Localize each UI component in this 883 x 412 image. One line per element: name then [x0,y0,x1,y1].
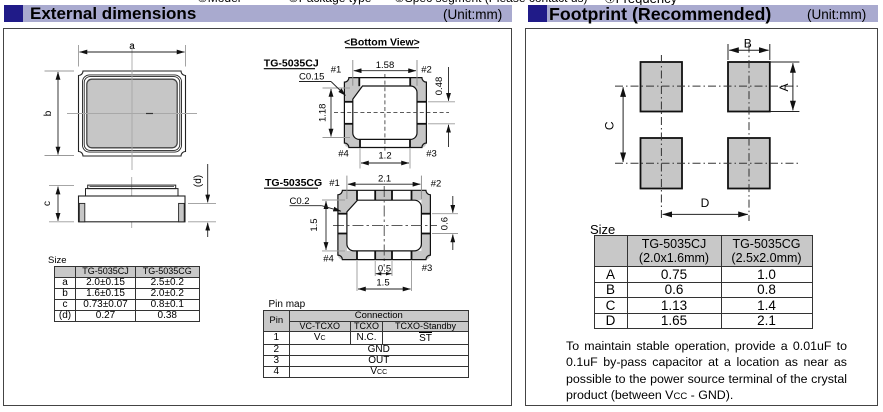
svg-text:#3: #3 [422,263,433,274]
svg-text:C: C [602,121,616,130]
svg-text:D: D [701,196,710,210]
svg-text:#4: #4 [338,149,349,160]
svg-text:0.48: 0.48 [434,77,445,96]
svg-text:0.5: 0.5 [378,263,391,274]
svg-text:TG-5035CG: TG-5035CG [265,177,322,189]
svg-text:#2: #2 [421,65,432,76]
svg-text:#1: #1 [331,65,342,76]
svg-text:a: a [129,41,135,52]
svg-text:(d): (d) [193,175,204,187]
svg-text:1.5: 1.5 [309,218,320,231]
svg-text:A: A [777,83,791,91]
svg-text:#4: #4 [323,254,334,265]
svg-text:1.58: 1.58 [376,60,395,71]
svg-text:#2: #2 [431,178,442,189]
svg-text:b: b [43,110,54,116]
svg-text:#1: #1 [329,178,340,189]
svg-text:c: c [42,201,53,206]
svg-text:<Bottom View>: <Bottom View> [344,36,420,48]
svg-text:1.18: 1.18 [318,104,329,123]
svg-text:TG-5035CJ: TG-5035CJ [264,57,319,69]
svg-text:2.1: 2.1 [378,173,391,184]
svg-text:B: B [744,37,752,51]
svg-text:1.5: 1.5 [376,278,389,289]
svg-text:0.6: 0.6 [439,217,450,230]
svg-text:#3: #3 [426,149,437,160]
svg-text:1.2: 1.2 [378,150,391,161]
svg-text:C0.15: C0.15 [299,71,324,82]
